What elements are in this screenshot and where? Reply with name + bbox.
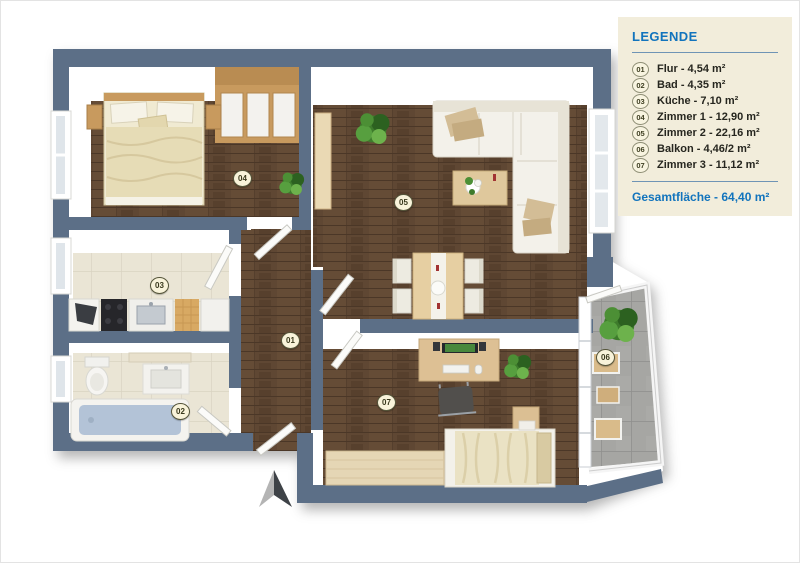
balcony-table (597, 387, 619, 403)
room-badge-zimmer3: 07 (377, 394, 396, 411)
single-bed (445, 421, 555, 487)
balcony-glazing (579, 297, 591, 467)
floorplan-page: 01 02 03 04 05 06 07 LEGENDE 01 Flur - 4… (0, 0, 800, 563)
legend-panel: LEGENDE 01 Flur - 4,54 m² 02 Bad - 4,35 … (618, 17, 792, 216)
divider (632, 181, 778, 182)
legend-item-label: Flur - 4,54 m² (657, 63, 725, 75)
bath-shelf (129, 353, 191, 362)
coffee-table (453, 171, 507, 205)
floor-flur (241, 229, 311, 439)
toilet (85, 357, 109, 395)
washbasin (143, 364, 189, 394)
legend-item-label: Zimmer 2 - 22,16 m² (657, 127, 760, 139)
room-badge-kueche: 03 (150, 277, 169, 294)
legend-item-number: 01 (632, 62, 649, 77)
legend-item-label: Bad - 4,35 m² (657, 79, 725, 91)
room-badge-zimmer2: 05 (394, 194, 413, 211)
legend-item: 02 Bad - 4,35 m² (632, 77, 778, 93)
legend-item-number: 06 (632, 142, 649, 157)
legend-item: 06 Balkon - 4,46/2 m² (632, 141, 778, 157)
legend-item-number: 05 (632, 126, 649, 141)
plant (599, 307, 637, 342)
window-zimmer1 (51, 111, 71, 199)
window-kueche (51, 238, 71, 294)
legend-item: 03 Küche - 7,10 m² (632, 93, 778, 109)
divider (632, 52, 778, 53)
north-arrow-icon (259, 470, 292, 507)
legend-item-number: 07 (632, 158, 649, 173)
nightstand (206, 105, 221, 129)
legend-item: 07 Zimmer 3 - 11,12 m² (632, 157, 778, 173)
window-zimmer2 (589, 109, 615, 233)
legend-title: LEGENDE (632, 29, 778, 44)
legend-items: 01 Flur - 4,54 m² 02 Bad - 4,35 m² 03 Kü… (632, 61, 778, 173)
plant (356, 113, 390, 144)
desk (419, 339, 499, 381)
bedside-shelf (519, 421, 535, 430)
legend-item-label: Küche - 7,10 m² (657, 95, 738, 107)
legend-total: Gesamtfläche - 64,40 m² (632, 190, 778, 204)
legend-item-label: Zimmer 1 - 12,90 m² (657, 111, 760, 123)
room-badge-flur: 01 (281, 332, 300, 349)
low-sideboard (326, 451, 444, 485)
balcony-chair (595, 419, 621, 439)
tall-cabinet (201, 299, 229, 331)
legend-item-label: Zimmer 3 - 11,12 m² (657, 159, 759, 171)
double-bed (104, 93, 204, 205)
legend-item-label: Balkon - 4,46/2 m² (657, 143, 751, 155)
room-badge-bad: 02 (171, 403, 190, 420)
room-badge-balkon: 06 (596, 349, 615, 366)
legend-item: 05 Zimmer 2 - 22,16 m² (632, 125, 778, 141)
kitchen-furniture (69, 299, 229, 331)
legend-item: 01 Flur - 4,54 m² (632, 61, 778, 77)
plant (279, 172, 304, 195)
nightstand (87, 105, 102, 129)
bathtub (71, 399, 189, 441)
legend-item-number: 02 (632, 78, 649, 93)
room-badge-zimmer1: 04 (233, 170, 252, 187)
legend-item-number: 04 (632, 110, 649, 125)
legend-item-number: 03 (632, 94, 649, 109)
stove (101, 299, 127, 331)
legend-item: 04 Zimmer 1 - 12,90 m² (632, 109, 778, 125)
plant (504, 354, 531, 379)
sideboard (315, 113, 331, 209)
window-bad (51, 356, 71, 402)
